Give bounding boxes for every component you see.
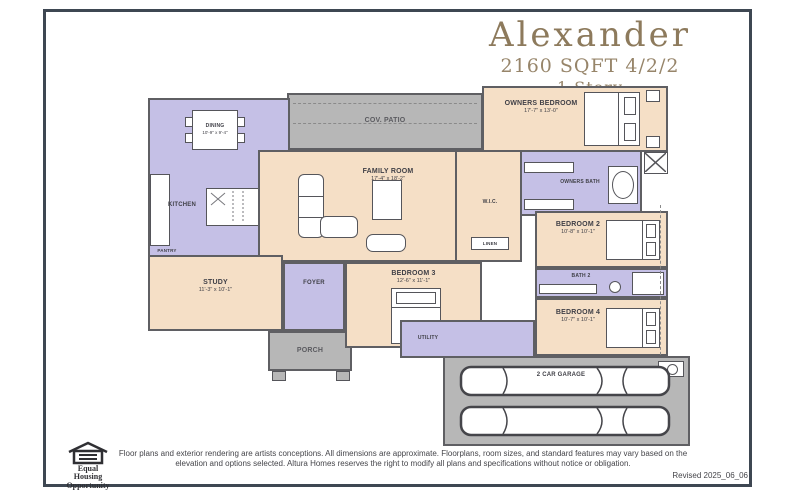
loveseat-icon bbox=[366, 234, 406, 252]
room-bedroom-2: BEDROOM 2 10'-8" x 10'-1" bbox=[535, 211, 668, 268]
room-utility: UTILITY bbox=[400, 320, 535, 358]
room-label: PANTRY bbox=[152, 248, 182, 253]
vanity-icon bbox=[524, 162, 574, 173]
room-bath-2: BATH 2 bbox=[535, 268, 668, 298]
patio-dashed-line bbox=[293, 103, 477, 104]
bathtub-icon bbox=[608, 166, 638, 204]
room-label: KITCHEN bbox=[156, 202, 208, 209]
room-label: COV. PATIO bbox=[289, 117, 481, 125]
room-bedroom-4: BEDROOM 4 10'-7" x 10'-1" bbox=[535, 298, 668, 356]
vanity-icon bbox=[539, 284, 597, 294]
toilet-icon bbox=[609, 281, 621, 293]
room-porch: PORCH bbox=[268, 331, 352, 371]
dashed-wall-line bbox=[660, 205, 661, 360]
porch-step bbox=[272, 371, 286, 381]
plan-sqft-spec: 2160 SQFT 4/2/2 bbox=[430, 55, 750, 77]
plan-title: Alexander bbox=[430, 18, 750, 52]
room-label: BEDROOM 2 10'-8" x 10'-1" bbox=[543, 221, 613, 235]
room-label: BATH 2 bbox=[561, 274, 601, 280]
room-owners-bath: OWNERS BATH bbox=[520, 150, 642, 216]
room-label: OWNERS BEDROOM 17'-7" x 13'-0" bbox=[502, 100, 580, 114]
linen-closet: LINEN bbox=[471, 237, 509, 250]
disclaimer-text: Floor plans and exterior rendering are a… bbox=[118, 449, 688, 470]
revised-date: Revised 2025_06_06 bbox=[588, 471, 748, 480]
room-wic-hall: W.I.C. LINEN bbox=[455, 150, 522, 262]
room-label: W.I.C. bbox=[467, 200, 513, 206]
room-family-room: FAMILY ROOM 17'-4" x 18'-2" bbox=[258, 150, 482, 262]
car-icon bbox=[459, 365, 671, 397]
room-label: PORCH bbox=[270, 347, 350, 355]
room-label: OWNERS BATH bbox=[550, 180, 610, 186]
kitchen-counter-icon bbox=[150, 174, 170, 246]
nightstand-icon bbox=[646, 136, 660, 148]
room-foyer: FOYER bbox=[283, 262, 345, 331]
shower-icon bbox=[644, 152, 668, 174]
room-label: STUDY 11'-3" x 10'-1" bbox=[150, 279, 281, 293]
eho-text-line: Opportunity bbox=[55, 482, 121, 490]
sofa-icon bbox=[320, 216, 358, 238]
room-owners-bedroom: OWNERS BEDROOM 17'-7" x 13'-0" bbox=[482, 86, 668, 152]
nightstand-icon bbox=[646, 90, 660, 102]
kitchen-island-icon bbox=[206, 188, 260, 226]
room-label: BEDROOM 3 12'-6" x 11'-1" bbox=[347, 270, 480, 284]
equal-housing-logo: Equal Housing Opportunity bbox=[55, 441, 121, 490]
room-label: 2 CAR GARAGE bbox=[531, 372, 591, 379]
room-study: STUDY 11'-3" x 10'-1" bbox=[148, 255, 283, 331]
room-label: BEDROOM 4 10'-7" x 10'-1" bbox=[543, 309, 613, 323]
coffee-table-icon bbox=[372, 180, 402, 220]
room-label: DINING 10'-9" x 9'-4" bbox=[192, 124, 238, 135]
car-icon bbox=[459, 405, 671, 437]
bed-icon bbox=[606, 308, 660, 348]
room-label: LINEN bbox=[472, 241, 508, 246]
porch-step bbox=[336, 371, 350, 381]
room-label: UTILITY bbox=[408, 336, 448, 342]
room-garage: 2 CAR GARAGE bbox=[443, 356, 690, 446]
room-cov-patio: COV. PATIO bbox=[287, 93, 483, 150]
room-label: FOYER bbox=[285, 280, 343, 287]
bed-icon bbox=[606, 220, 660, 260]
bed-icon bbox=[584, 92, 640, 146]
house-icon bbox=[66, 441, 110, 465]
floor-plan: COV. PATIO OWNERS BEDROOM 17'-7" x 13'-0… bbox=[130, 83, 695, 448]
floor-plan-page: Alexander 2160 SQFT 4/2/2 1 Story COV. P… bbox=[0, 0, 800, 500]
vanity-icon bbox=[524, 199, 574, 210]
